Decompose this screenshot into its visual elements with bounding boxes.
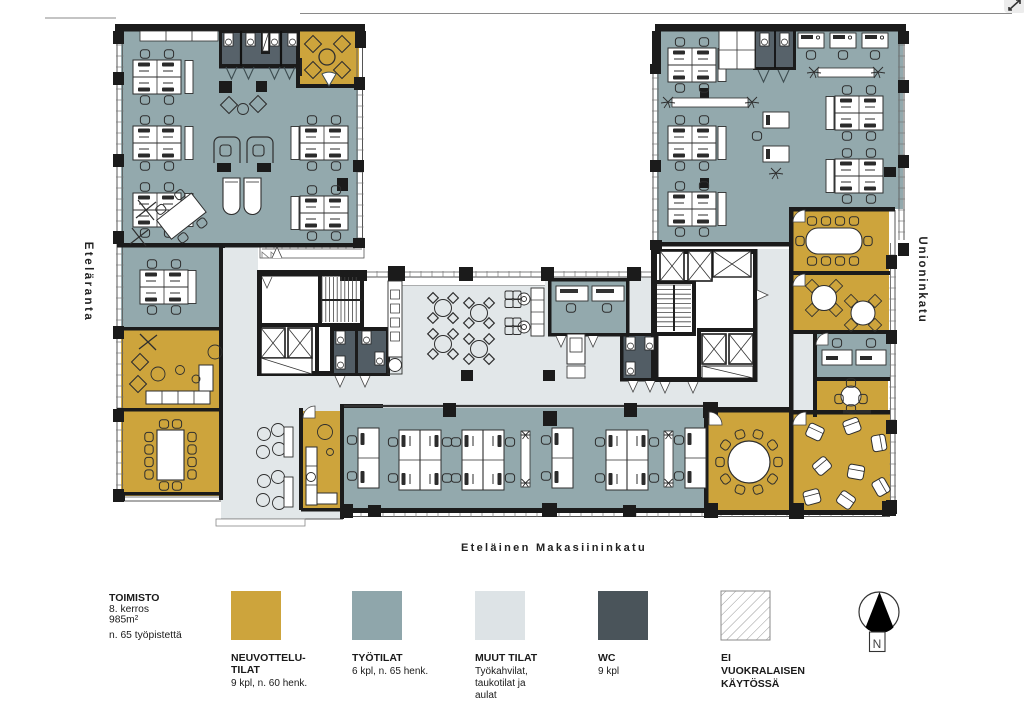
svg-text:aulat: aulat xyxy=(475,690,497,701)
svg-text:8. kerros: 8. kerros xyxy=(109,604,149,615)
svg-text:Eteläranta: Eteläranta xyxy=(82,242,94,323)
svg-text:n. 65 työpistettä: n. 65 työpistettä xyxy=(109,630,182,641)
svg-text:985m²: 985m² xyxy=(109,615,139,626)
svg-text:N: N xyxy=(873,637,882,651)
svg-text:taukotilat ja: taukotilat ja xyxy=(475,678,526,689)
svg-text:NEUVOTTELU-: NEUVOTTELU- xyxy=(231,652,306,664)
svg-text:TILAT: TILAT xyxy=(231,664,261,676)
svg-text:Unioninkatu: Unioninkatu xyxy=(916,236,928,323)
svg-text:9 kpl: 9 kpl xyxy=(598,666,619,677)
svg-text:TYÖTILAT: TYÖTILAT xyxy=(352,651,403,664)
svg-text:EI: EI xyxy=(721,652,731,664)
svg-text:Työkahvilat,: Työkahvilat, xyxy=(475,666,528,677)
svg-text:WC: WC xyxy=(598,652,616,664)
svg-text:Eteläinen Makasiininkatu: Eteläinen Makasiininkatu xyxy=(461,542,647,554)
svg-text:KÄYTÖSSÄ: KÄYTÖSSÄ xyxy=(721,677,780,690)
svg-text:VUOKRALAISEN: VUOKRALAISEN xyxy=(721,665,805,677)
svg-text:9 kpl, n. 60 henk.: 9 kpl, n. 60 henk. xyxy=(231,678,307,689)
svg-text:MUUT TILAT: MUUT TILAT xyxy=(475,652,538,664)
svg-text:6 kpl, n. 65 henk.: 6 kpl, n. 65 henk. xyxy=(352,666,428,677)
svg-text:TOIMISTO: TOIMISTO xyxy=(109,592,159,604)
